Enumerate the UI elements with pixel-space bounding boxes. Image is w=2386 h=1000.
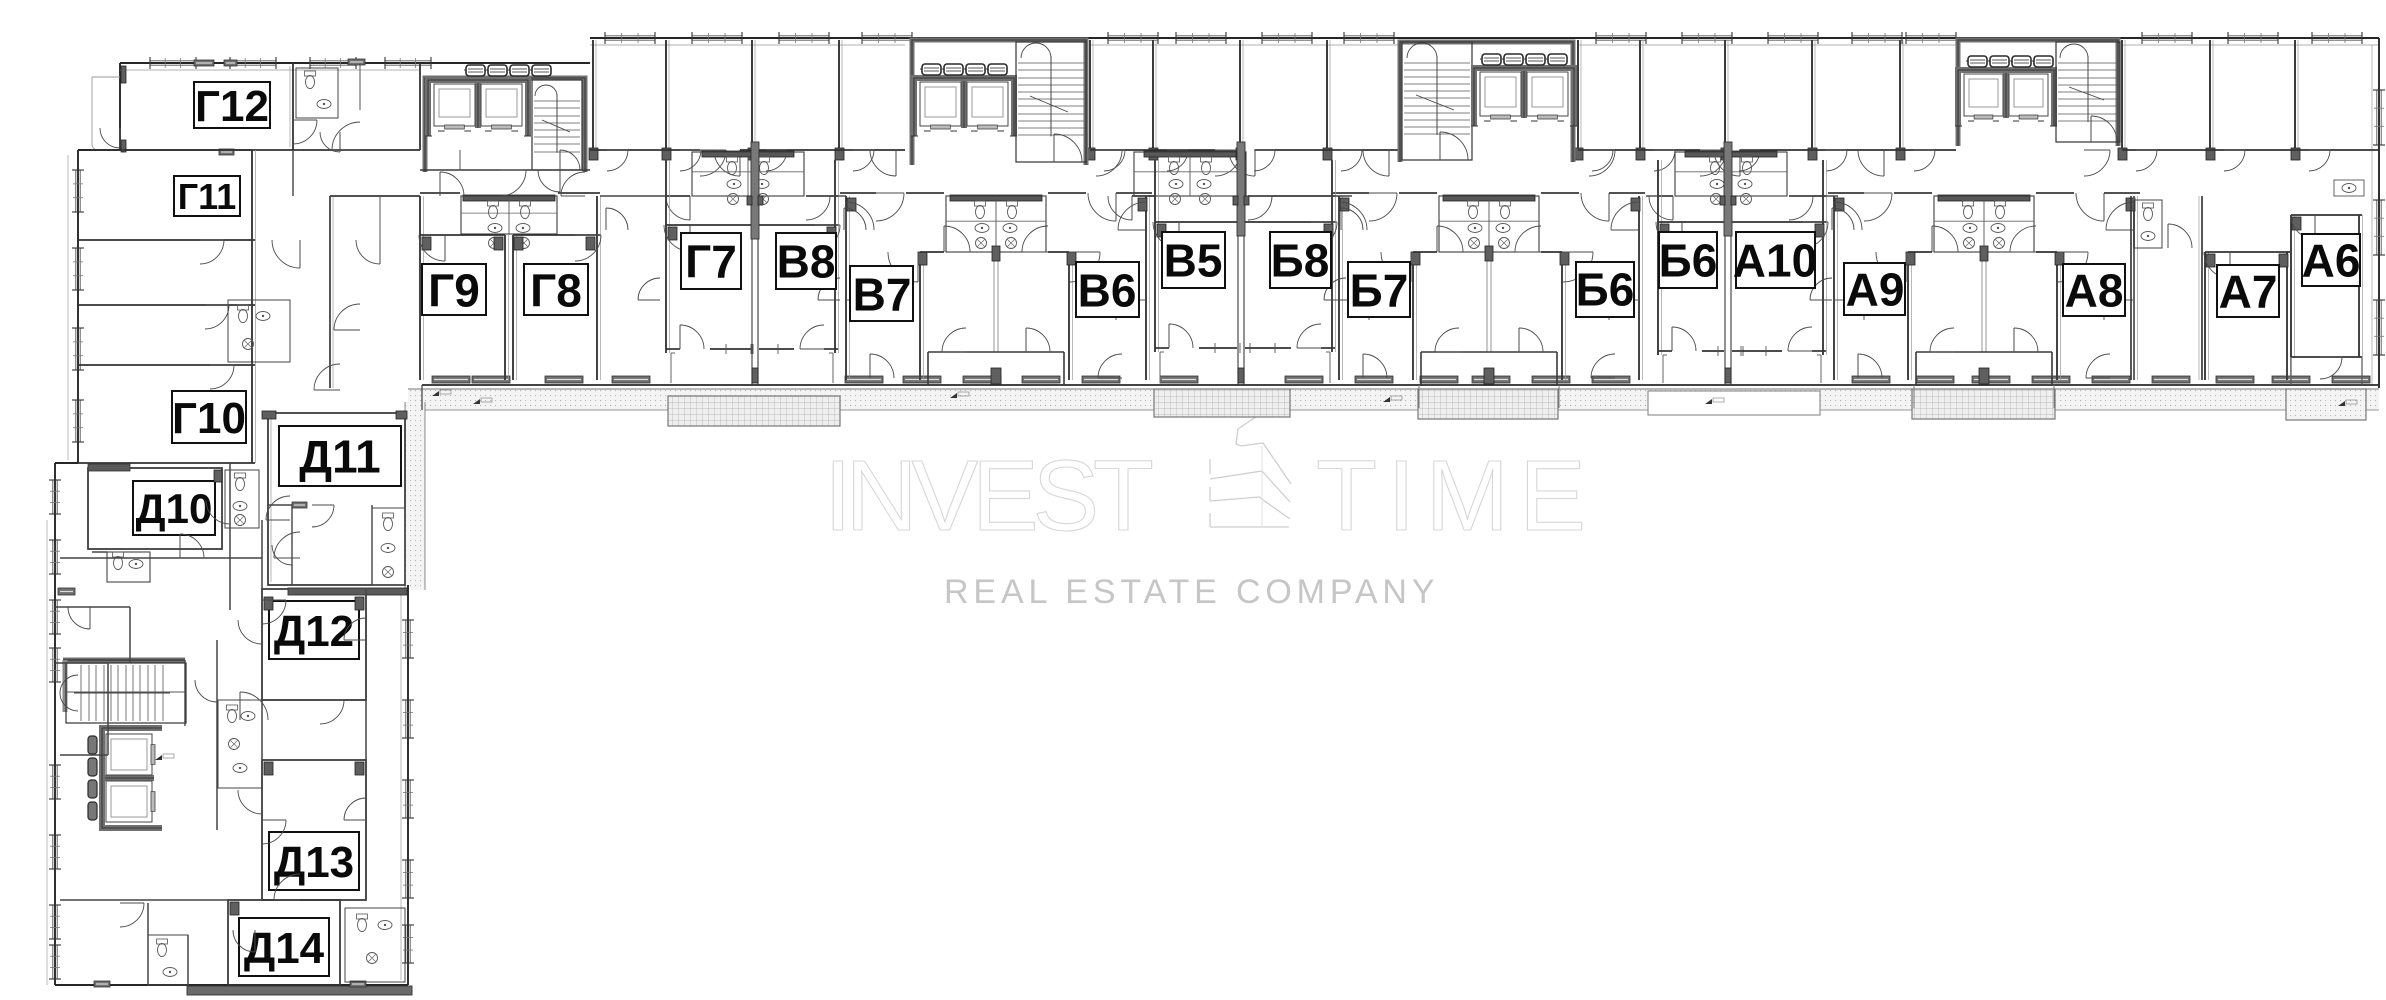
svg-text:Б8: Б8 (1271, 235, 1330, 287)
svg-text:Г8: Г8 (530, 265, 582, 317)
svg-text:Д13: Д13 (274, 838, 354, 887)
svg-text:В5: В5 (1164, 235, 1223, 287)
svg-text:В7: В7 (853, 269, 912, 321)
svg-text:Д14: Д14 (244, 924, 325, 973)
svg-text:Г10: Г10 (172, 394, 246, 443)
svg-text:Д10: Д10 (136, 485, 213, 532)
svg-text:Г11: Г11 (178, 176, 236, 217)
svg-text:Г7: Г7 (685, 236, 737, 288)
svg-text:А7: А7 (2219, 266, 2278, 318)
svg-text:А10: А10 (1733, 235, 1817, 287)
svg-text:Б6: Б6 (1659, 235, 1718, 287)
svg-text:Б7: Б7 (1350, 265, 1409, 317)
svg-text:А6: А6 (2302, 235, 2361, 287)
svg-text:TIME: TIME (1316, 440, 1594, 552)
svg-text:Д11: Д11 (299, 431, 380, 483)
svg-text:INVEST: INVEST (824, 440, 1162, 552)
svg-text:А9: А9 (1846, 264, 1905, 316)
svg-text:А8: А8 (2065, 265, 2124, 317)
svg-text:Д12: Д12 (274, 607, 354, 656)
svg-text:Г12: Г12 (195, 82, 269, 131)
svg-text:REAL ESTATE COMPANY: REAL ESTATE COMPANY (944, 573, 1446, 611)
svg-text:В6: В6 (1078, 265, 1137, 317)
svg-text:Г9: Г9 (428, 265, 480, 317)
svg-text:Б6: Б6 (1576, 264, 1635, 316)
svg-text:В8: В8 (777, 236, 836, 288)
